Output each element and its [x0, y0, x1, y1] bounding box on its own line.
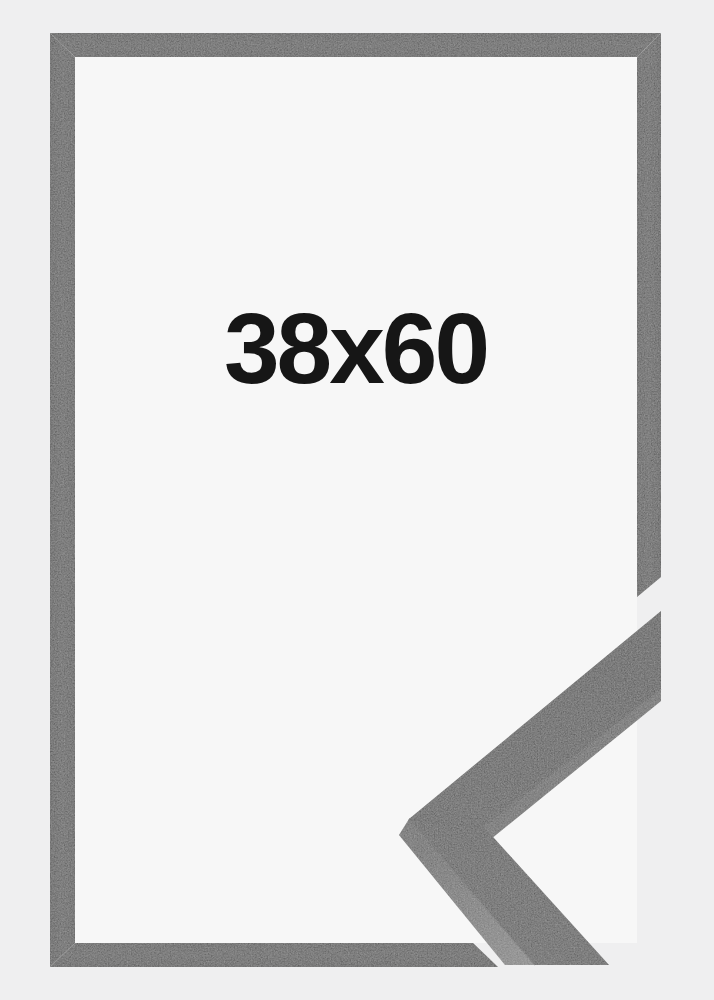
frame-bottom-edge [50, 943, 498, 967]
product-image: 38x60 [0, 0, 714, 1000]
picture-frame-illustration [0, 0, 714, 1000]
frame-top-edge [50, 33, 661, 57]
frame-inner-area [75, 57, 637, 943]
size-label: 38x60 [50, 298, 661, 398]
frame-left-edge [50, 33, 75, 967]
